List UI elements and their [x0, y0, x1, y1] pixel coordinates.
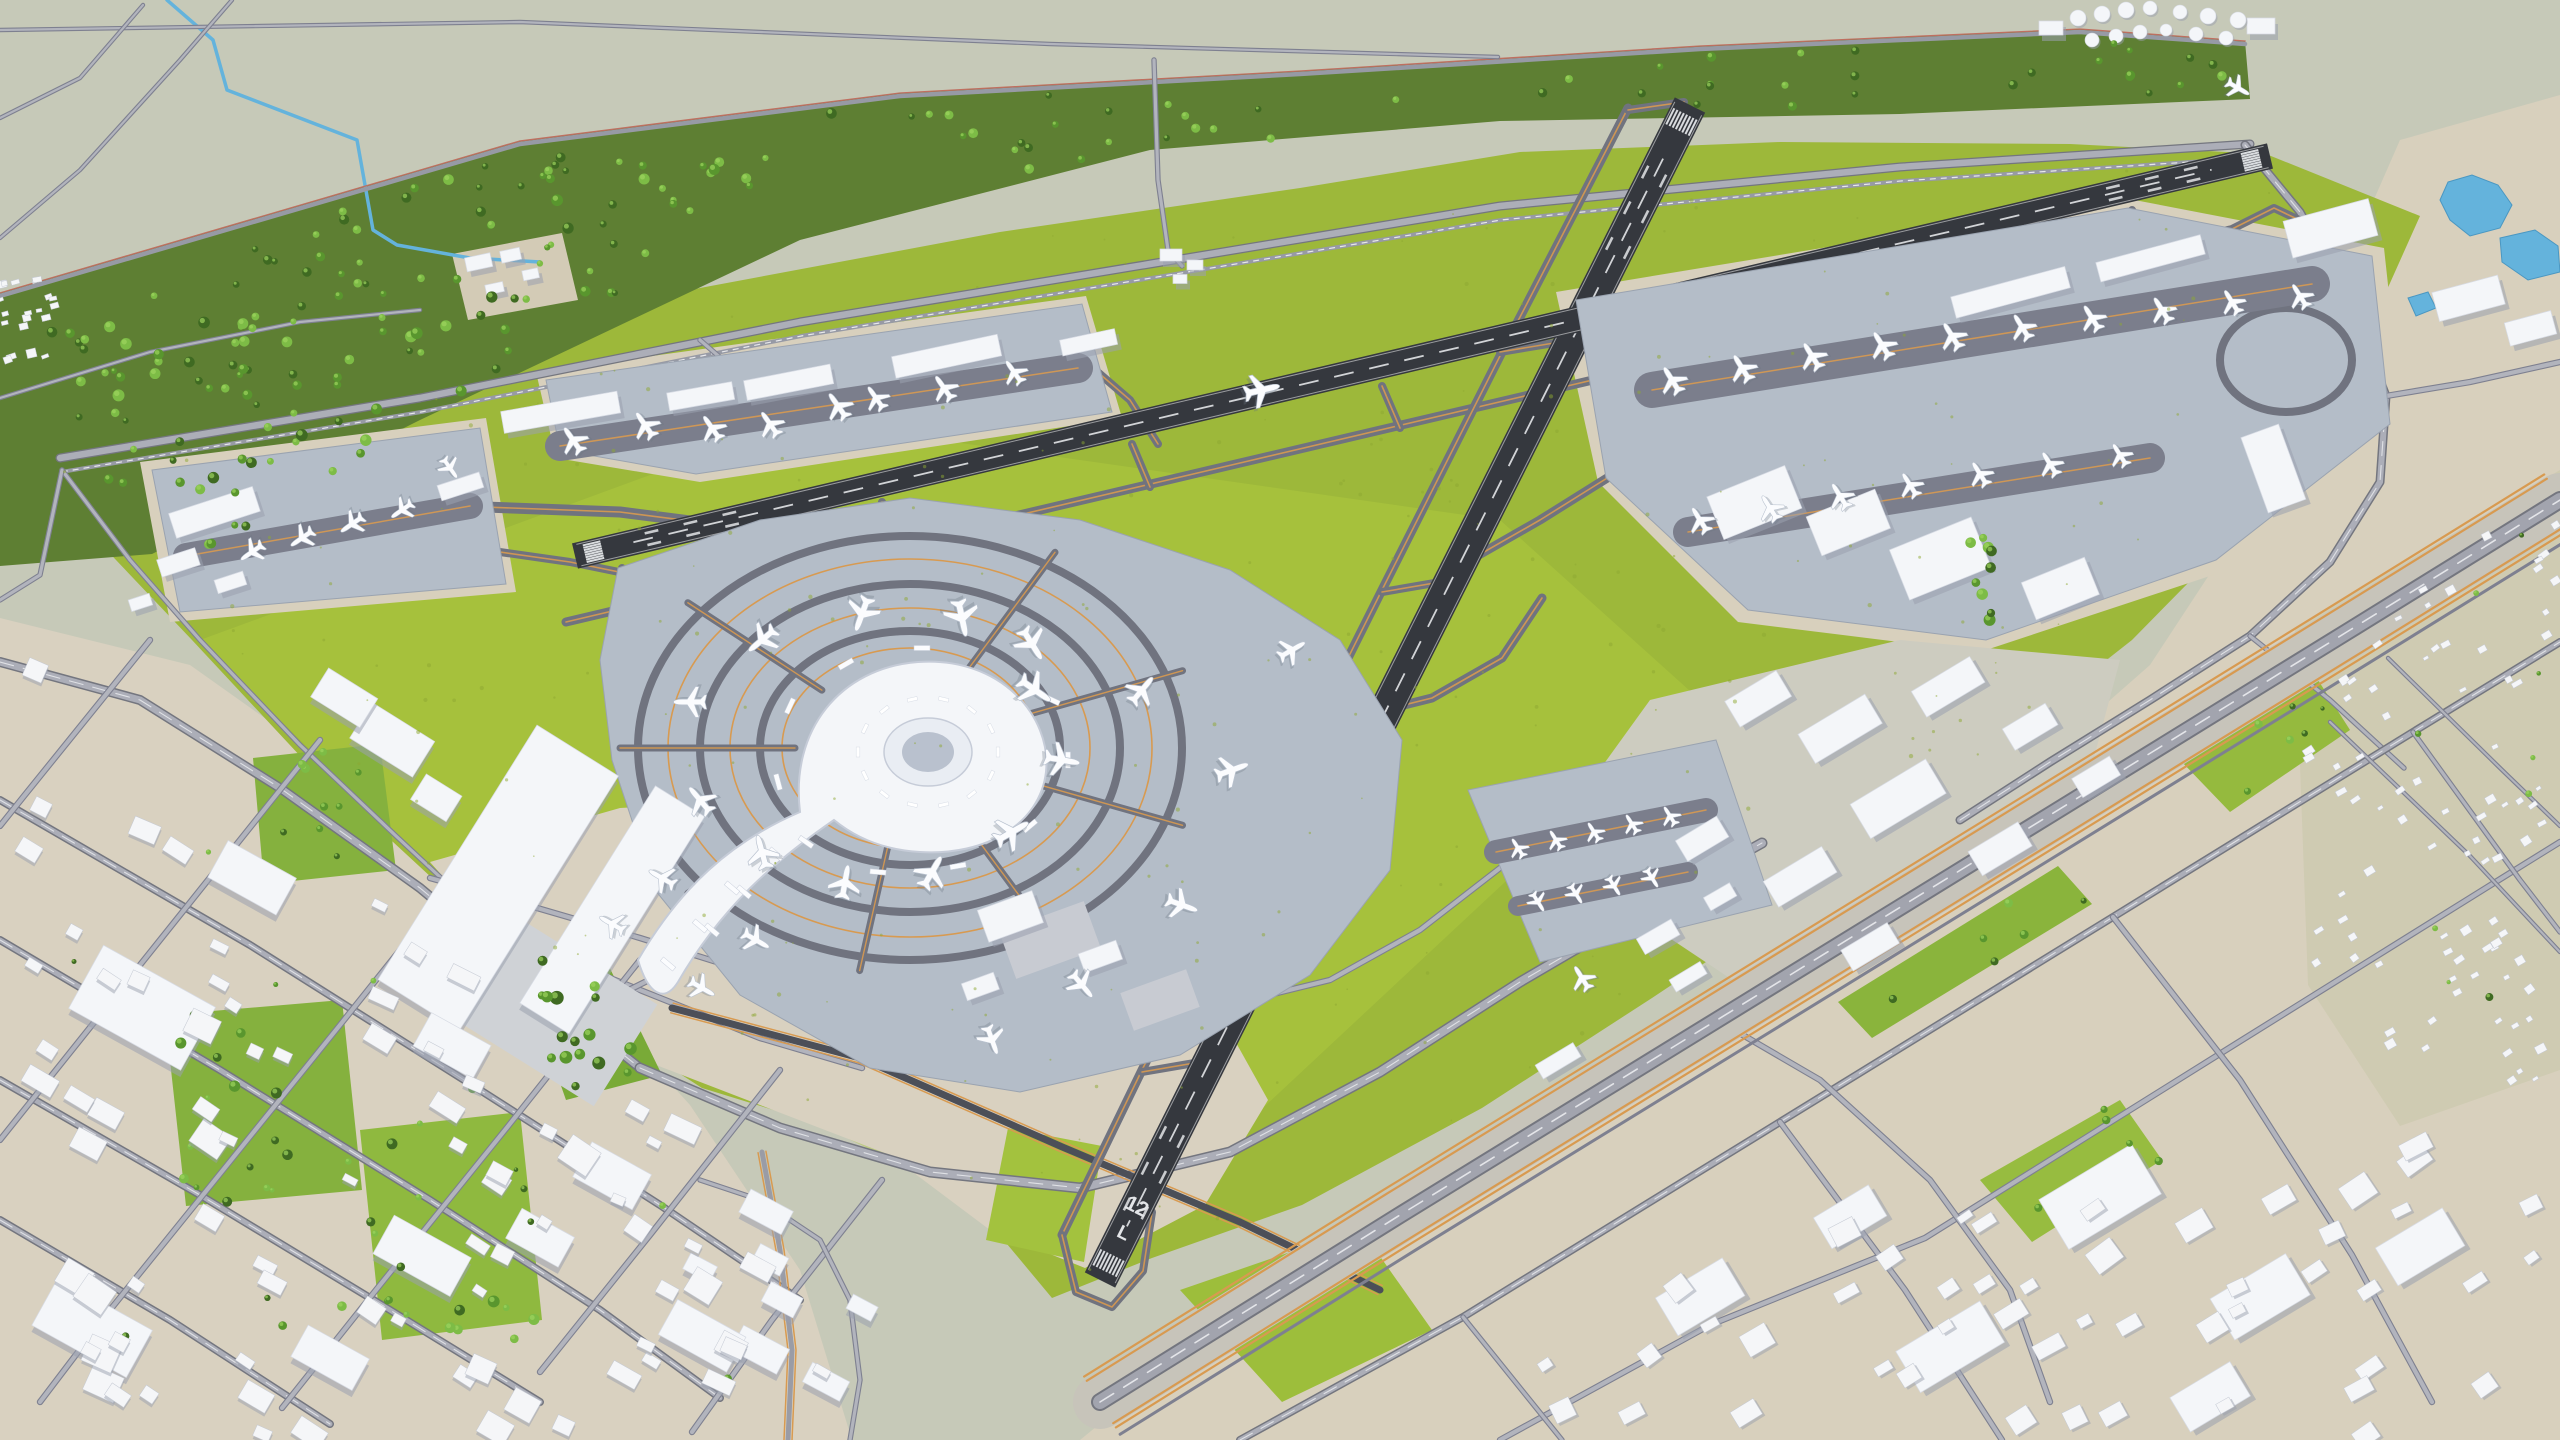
tree [1024, 143, 1033, 152]
tree [313, 231, 320, 238]
tree [2254, 720, 2262, 728]
tree [231, 522, 238, 529]
tree [208, 472, 219, 483]
grass-speckle [1663, 230, 1665, 232]
tree [401, 193, 411, 203]
tree [290, 318, 296, 324]
tree [1850, 71, 1859, 80]
grass-speckle [1487, 614, 1490, 617]
grass-speckle [1655, 709, 1657, 711]
grass-speckle [771, 920, 774, 923]
grass-speckle [1951, 463, 1953, 465]
grass-speckle [1430, 468, 1434, 472]
tree [372, 1230, 378, 1236]
grass-speckle [1746, 806, 1750, 810]
tree [2126, 71, 2136, 81]
tree [557, 1031, 568, 1042]
grass-speckle [1015, 380, 1018, 383]
tree [154, 349, 164, 359]
tree [1707, 52, 1717, 62]
grass-speckle [441, 508, 443, 510]
tree [592, 1057, 605, 1070]
jet-bridge [914, 646, 930, 651]
tree [537, 260, 543, 266]
grass-speckle [2119, 323, 2122, 326]
grass-speckle [2139, 219, 2141, 221]
grass-speckle [1124, 263, 1126, 265]
tree [968, 128, 978, 138]
tree [271, 1136, 279, 1144]
grass-speckle [781, 457, 784, 460]
tree [443, 174, 454, 185]
grass-speckle [1107, 407, 1111, 411]
tree [80, 345, 89, 354]
tree [1852, 91, 1859, 98]
tree [238, 454, 247, 463]
grass-speckle [1147, 875, 1150, 878]
grass-speckle [1657, 624, 1661, 628]
grass-speckle [721, 438, 723, 440]
tree [47, 327, 58, 338]
tree [1980, 935, 1988, 943]
tree [2111, 40, 2118, 47]
grass-speckle [1431, 692, 1433, 694]
grass-speckle [1950, 415, 1953, 418]
house [26, 348, 37, 359]
grass-speckle [1928, 749, 1931, 752]
grass-speckle [914, 742, 916, 744]
tree [282, 337, 293, 348]
tree [273, 982, 278, 987]
tree [1987, 609, 1995, 617]
grass-speckle [806, 1098, 809, 1101]
grass-speckle [939, 744, 942, 747]
grass-speckle [741, 1032, 744, 1035]
tree [440, 320, 451, 331]
tree [175, 437, 184, 446]
tree [406, 348, 413, 355]
grass-speckle [1342, 479, 1345, 482]
grass-speckle [1277, 910, 1280, 913]
grass-speckle [1911, 737, 1914, 740]
grass-speckle [1041, 1172, 1043, 1174]
grass-speckle [1791, 352, 1794, 355]
grass-speckle [1135, 1152, 1138, 1155]
tree [488, 1296, 500, 1308]
tree [1985, 562, 1996, 573]
tree [1638, 89, 1646, 97]
grass-speckle [1618, 993, 1621, 996]
grass-speckle [984, 1014, 987, 1017]
jet-bridge [870, 869, 886, 875]
grass-speckle [665, 713, 667, 715]
building [2247, 18, 2278, 40]
tree [278, 1321, 287, 1330]
tree [2028, 69, 2036, 77]
grass-speckle [1421, 491, 1424, 494]
grass-speckle [1195, 959, 1199, 963]
house [1, 280, 8, 286]
grass-speckle [1200, 1026, 1204, 1030]
tree [1052, 121, 1059, 128]
grass-speckle [976, 286, 978, 288]
tree [2301, 730, 2307, 736]
tree [510, 294, 518, 302]
grass-speckle [423, 698, 427, 702]
grass-speckle [1529, 1066, 1531, 1068]
tree [590, 981, 600, 991]
grass-speckle [618, 529, 621, 532]
tree [194, 1184, 200, 1190]
tree [746, 182, 753, 189]
grass-speckle [322, 639, 325, 642]
grass-speckle [1335, 1003, 1337, 1005]
grass-speckle [831, 617, 835, 621]
grass-speckle [1868, 603, 1872, 607]
grass-speckle [1053, 530, 1055, 532]
tree [2102, 1116, 2110, 1124]
tree [2286, 736, 2294, 744]
tree [608, 200, 616, 208]
tree [551, 161, 559, 169]
grass-speckle [1165, 864, 1168, 867]
grass-speckle [1709, 356, 1711, 358]
grass-speckle [927, 623, 931, 627]
grass-speckle [751, 1014, 754, 1017]
tree [2126, 1140, 2133, 1147]
grass-speckle [967, 868, 971, 872]
tree [476, 206, 486, 216]
grass-speckle [1452, 213, 1454, 215]
grass-speckle [792, 942, 794, 944]
grass-speckle [1309, 832, 1311, 834]
grass-speckle [480, 686, 484, 690]
grass-speckle [1728, 679, 1731, 682]
grass-speckle [770, 652, 772, 654]
grass-speckle [1180, 1086, 1182, 1088]
grass-speckle [1637, 391, 1641, 395]
tree [417, 1120, 423, 1126]
tree [591, 993, 599, 1001]
grass-speckle [785, 942, 787, 944]
tree [1266, 134, 1274, 142]
tree [504, 347, 511, 354]
grass-speckle [1129, 493, 1133, 497]
grass-speckle [2125, 169, 2128, 172]
tree [926, 111, 933, 118]
tree [316, 825, 323, 832]
grass-speckle [1903, 334, 1906, 337]
tree [231, 339, 239, 347]
grass-speckle [1216, 1217, 1220, 1221]
grass-speckle [1361, 798, 1363, 800]
grass-speckle [1616, 570, 1619, 573]
grass-speckle [1849, 544, 1852, 547]
tree [1965, 537, 1976, 548]
grass-speckle [1824, 271, 1826, 273]
grass-speckle [1535, 705, 1539, 709]
grass-speckle [2165, 228, 2168, 231]
tree [123, 418, 129, 424]
grass-speckle [1995, 672, 1997, 674]
tree [296, 429, 308, 441]
grass-speckle [537, 403, 539, 405]
tree [379, 328, 387, 336]
grass-speckle [2058, 623, 2060, 625]
grass-speckle [1686, 770, 1689, 773]
grass-speckle [1673, 555, 1675, 557]
grass-speckle [366, 699, 368, 701]
grass-speckle [2176, 413, 2179, 416]
grass-speckle [427, 861, 430, 864]
grass-speckle [1609, 643, 1613, 647]
tree [379, 314, 386, 321]
fuel-tank [2109, 29, 2123, 43]
grass-speckle [774, 862, 776, 864]
tree [104, 474, 113, 483]
tree [175, 478, 184, 487]
house [32, 276, 42, 283]
tree [2004, 899, 2013, 908]
grass-speckle [230, 604, 234, 608]
tree [1538, 88, 1547, 97]
tree [2127, 47, 2133, 53]
tree [206, 849, 211, 854]
tree [1788, 102, 1797, 111]
grass-speckle [1549, 394, 1553, 398]
tree [356, 259, 362, 265]
grass-speckle [1463, 390, 1465, 392]
tree [2081, 898, 2087, 904]
grass-speckle [731, 315, 733, 317]
grass-speckle [1977, 753, 1979, 755]
tree [297, 302, 306, 311]
grass-speckle [1056, 822, 1060, 826]
tree [333, 373, 342, 382]
fuel-tank [2189, 27, 2203, 41]
tree [271, 1088, 282, 1099]
tree [263, 1184, 270, 1191]
tree [251, 313, 259, 321]
tree [184, 357, 195, 368]
grass-speckle [1196, 941, 1199, 944]
tree [198, 317, 210, 329]
tree [546, 174, 555, 183]
grass-speckle [866, 645, 868, 647]
grass-speckle [941, 475, 944, 478]
grass-speckle [1119, 1158, 1122, 1161]
tree [659, 185, 666, 192]
grass-speckle [1551, 282, 1555, 286]
grass-speckle [1959, 719, 1962, 722]
grass-speckle [901, 617, 905, 621]
tree [562, 167, 569, 174]
grass-speckle [1391, 557, 1394, 560]
grass-speckle [1267, 659, 1269, 661]
tree [410, 184, 419, 193]
tree [2530, 755, 2535, 760]
grass-speckle [744, 706, 747, 709]
grass-speckle [1248, 561, 1251, 564]
tree [298, 760, 307, 769]
tree [1657, 63, 1664, 70]
tree [762, 155, 768, 161]
tree [518, 182, 525, 189]
tree [237, 318, 248, 329]
tree [2473, 590, 2479, 596]
grass-speckle [469, 423, 473, 427]
tree [1392, 96, 1399, 103]
grass-speckle [1407, 515, 1410, 518]
grass-speckle [1134, 764, 1137, 767]
grass-speckle [1876, 323, 1878, 325]
tree [195, 484, 205, 494]
grass-speckle [1400, 885, 1402, 887]
grass-speckle [268, 536, 271, 539]
tree [1018, 139, 1026, 147]
grass-speckle [1439, 883, 1442, 886]
tree [669, 200, 677, 208]
fuel-tank [2133, 25, 2147, 39]
grass-speckle [1803, 464, 1805, 466]
tree [2020, 930, 2029, 939]
tree [411, 327, 423, 339]
grass-speckle [415, 800, 418, 803]
tree [571, 1082, 579, 1090]
tree [363, 281, 370, 288]
grass-speckle [416, 730, 420, 734]
grass-speckle [1630, 753, 1632, 755]
grass-speckle [1111, 989, 1113, 991]
grass-speckle [941, 405, 945, 409]
grass-speckle [1936, 695, 1938, 697]
grass-speckle [435, 398, 437, 400]
grass-speckle [1573, 574, 1577, 578]
grass-speckle [1347, 633, 1350, 636]
tree [1972, 578, 1981, 587]
tree [417, 274, 425, 282]
tree [205, 384, 213, 392]
grass-speckle [1079, 1139, 1081, 1141]
grass-speckle [1380, 650, 1383, 653]
grass-speckle [880, 934, 883, 937]
tree [353, 225, 362, 234]
tree [1976, 588, 1988, 600]
tree [741, 173, 751, 183]
tree [541, 991, 552, 1002]
tree [574, 1049, 585, 1060]
tree [639, 173, 650, 184]
tree [280, 829, 287, 836]
grass-speckle [553, 696, 555, 698]
tree [175, 1037, 186, 1048]
tree [72, 959, 77, 964]
tree [1781, 82, 1788, 89]
grass-speckle [808, 595, 812, 599]
grass-speckle [788, 608, 791, 611]
tree [222, 1197, 232, 1207]
tree [600, 220, 607, 227]
tree [221, 384, 230, 393]
tree [239, 336, 250, 347]
grass-speckle [1455, 845, 1458, 848]
tree [355, 769, 362, 776]
tree [528, 1218, 535, 1225]
grass-speckle [1872, 484, 1874, 486]
tree [337, 1301, 347, 1311]
grass-speckle [1539, 928, 1542, 931]
terminal-roof-mark [856, 747, 860, 757]
grass-speckle [1824, 459, 1826, 461]
grass-speckle [846, 1063, 849, 1066]
grass-speckle [1455, 695, 1458, 698]
tree [556, 152, 566, 162]
grass-speckle [1085, 607, 1088, 610]
grass-speckle [185, 459, 189, 463]
tree [396, 1262, 405, 1271]
grass-speckle [904, 597, 908, 601]
tree [151, 292, 158, 299]
grass-speckle [1414, 686, 1417, 689]
grass-speckle [2137, 539, 2139, 541]
tree [345, 1158, 352, 1165]
tree [329, 467, 337, 475]
tree [345, 355, 355, 365]
tree [2290, 703, 2296, 709]
grass-speckle [1346, 988, 1348, 990]
tree [270, 1188, 275, 1193]
tree [523, 295, 530, 302]
grass-speckle [63, 470, 66, 473]
tree [264, 1295, 270, 1301]
fuel-tank [2085, 33, 2099, 47]
tree [1986, 546, 1997, 557]
tree [1693, 101, 1700, 108]
grass-speckle [524, 463, 527, 466]
grass-speckle [860, 661, 864, 665]
grass-speckle [637, 526, 641, 530]
tree [1163, 135, 1169, 141]
grass-speckle [1380, 411, 1384, 415]
tree [271, 258, 278, 265]
grass-speckle [1370, 443, 1373, 446]
tree [113, 389, 125, 401]
grass-speckle [1005, 374, 1009, 378]
grass-speckle [553, 945, 557, 949]
tree [453, 275, 462, 284]
grass-speckle [505, 778, 508, 781]
tree [2100, 1106, 2107, 1113]
tree [264, 423, 272, 431]
grass-speckle [1661, 628, 1665, 632]
tree [65, 328, 75, 338]
tree [2320, 706, 2324, 710]
tree [486, 291, 497, 302]
grass-speckle [833, 797, 836, 800]
fuel-tank [2143, 1, 2157, 15]
tree [2485, 993, 2493, 1001]
tree [1889, 995, 1897, 1003]
tree [213, 1053, 222, 1062]
grass-speckle [923, 465, 926, 468]
tree [241, 522, 250, 531]
tree [334, 853, 340, 859]
tree [1565, 75, 1573, 83]
fuel-tank [2173, 5, 2187, 19]
grass-speckle [1482, 671, 1484, 673]
tree [263, 255, 273, 265]
fuel-tank [2230, 12, 2246, 28]
